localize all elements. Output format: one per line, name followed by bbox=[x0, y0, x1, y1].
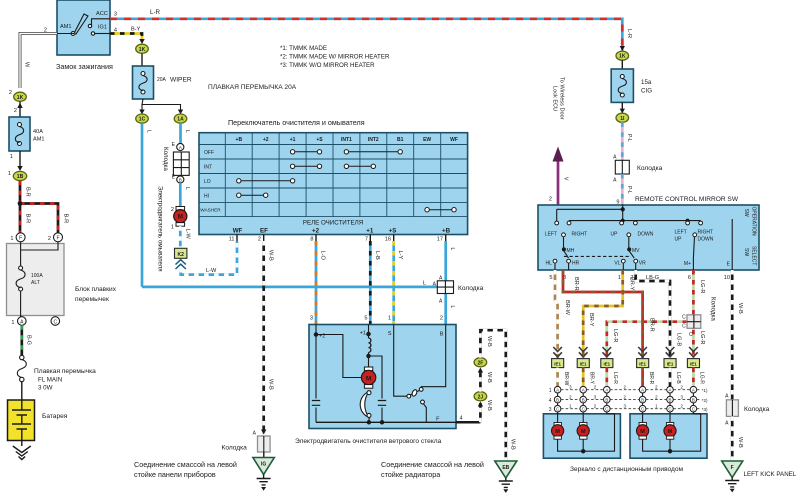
svg-text:10: 10 bbox=[724, 275, 730, 281]
svg-text:B: B bbox=[556, 398, 559, 403]
svg-text:+1: +1 bbox=[366, 228, 374, 235]
svg-text:C: C bbox=[668, 407, 671, 412]
svg-text:1K: 1K bbox=[619, 54, 626, 60]
svg-text:A: A bbox=[556, 388, 559, 393]
svg-text:L: L bbox=[423, 281, 426, 287]
svg-text:4: 4 bbox=[549, 398, 552, 404]
svg-text:*3): *3) bbox=[702, 407, 708, 412]
svg-text:A: A bbox=[179, 145, 182, 150]
svg-text:*1: TMMK MADE: *1: TMMK MADE bbox=[280, 45, 327, 52]
svg-text:To Wireless Door: To Wireless Door bbox=[559, 77, 565, 120]
svg-text:SELECT: SELECT bbox=[751, 246, 757, 265]
svg-text:DOWN: DOWN bbox=[638, 232, 654, 238]
svg-text:WF: WF bbox=[233, 228, 243, 235]
svg-text:3: 3 bbox=[310, 316, 313, 322]
svg-text:6: 6 bbox=[688, 275, 691, 281]
svg-text:UP: UP bbox=[611, 232, 619, 238]
svg-text:INT1: INT1 bbox=[341, 137, 352, 143]
svg-text:A: A bbox=[692, 388, 695, 393]
svg-text:Колодка: Колодка bbox=[744, 406, 770, 413]
svg-text:3 0W: 3 0W bbox=[38, 385, 53, 392]
svg-text:2: 2 bbox=[48, 236, 51, 242]
svg-text:IE1: IE1 bbox=[667, 361, 674, 366]
svg-text:L-B: L-B bbox=[374, 251, 380, 260]
svg-text:2: 2 bbox=[14, 108, 17, 114]
svg-text:L-O: L-O bbox=[320, 251, 326, 261]
svg-text:*1): *1) bbox=[702, 388, 708, 393]
svg-text:Колодка: Колодка bbox=[710, 297, 717, 321]
svg-text:WF: WF bbox=[450, 137, 458, 143]
svg-text:16: 16 bbox=[385, 237, 391, 243]
svg-text:A: A bbox=[582, 388, 585, 393]
svg-text:BR-R: BR-R bbox=[648, 372, 654, 385]
svg-text:EF: EF bbox=[260, 228, 268, 235]
svg-text:VR: VR bbox=[639, 261, 646, 267]
svg-text:B-G: B-G bbox=[26, 335, 32, 345]
svg-text:3: 3 bbox=[114, 12, 117, 18]
svg-text:CIG: CIG bbox=[641, 88, 652, 95]
svg-text:L: L bbox=[146, 130, 152, 133]
svg-text:W-B: W-B bbox=[268, 379, 274, 390]
svg-text:LG-R: LG-R bbox=[699, 372, 705, 384]
svg-text:REMOTE CONTROL MIRROR SW: REMOTE CONTROL MIRROR SW bbox=[635, 196, 739, 203]
svg-text:ACC: ACC bbox=[96, 11, 108, 17]
svg-text:2: 2 bbox=[171, 207, 174, 213]
svg-text:B: B bbox=[605, 398, 608, 403]
svg-text:L: L bbox=[184, 187, 190, 190]
svg-text:M: M bbox=[178, 214, 183, 221]
svg-text:B-R: B-R bbox=[25, 214, 31, 224]
svg-text:+B: +B bbox=[236, 137, 243, 143]
svg-text:*2: TMMK MADE W/ MIRROR HEATER: *2: TMMK MADE W/ MIRROR HEATER bbox=[280, 54, 390, 61]
svg-text:Зеркало с дистанционным привод: Зеркало с дистанционным приводом bbox=[570, 466, 684, 473]
svg-text:L-R: L-R bbox=[150, 9, 161, 16]
svg-text:ПЛАВКАЯ ПЕРЕМЫЧКА 20А: ПЛАВКАЯ ПЕРЕМЫЧКА 20А bbox=[208, 84, 297, 91]
svg-text:LG-R: LG-R bbox=[699, 280, 705, 293]
svg-text:2: 2 bbox=[440, 316, 443, 322]
svg-text:RIGHT: RIGHT bbox=[572, 232, 588, 238]
svg-text:INT2: INT2 bbox=[368, 137, 379, 143]
svg-text:M+: M+ bbox=[684, 261, 691, 267]
svg-text:1I: 1I bbox=[620, 116, 625, 122]
svg-text:B-R: B-R bbox=[63, 214, 69, 224]
svg-text:Электродвигатель омывателя: Электродвигатель омывателя bbox=[157, 186, 164, 272]
svg-text:EB: EB bbox=[502, 465, 509, 471]
svg-text:Соединение смассой на левой: Соединение смассой на левой bbox=[134, 460, 237, 469]
svg-text:1: 1 bbox=[8, 171, 11, 177]
svg-text:B: B bbox=[440, 332, 444, 338]
svg-text:FL MAIN: FL MAIN bbox=[38, 377, 62, 384]
svg-text:1B: 1B bbox=[17, 174, 24, 180]
svg-text:Соединение смассой на левой: Соединение смассой на левой bbox=[381, 460, 484, 469]
svg-text:F: F bbox=[56, 236, 59, 242]
svg-text:100A: 100A bbox=[31, 273, 43, 279]
svg-text:Переключатель очистителя и омы: Переключатель очистителя и омывателя bbox=[228, 118, 365, 127]
svg-text:1: 1 bbox=[388, 316, 391, 322]
svg-text:SW: SW bbox=[743, 209, 749, 217]
svg-text:C: C bbox=[682, 324, 686, 330]
svg-text:40A: 40A bbox=[33, 129, 43, 135]
svg-text:20A: 20A bbox=[157, 77, 167, 83]
svg-text:OPERATION: OPERATION bbox=[751, 207, 757, 236]
svg-text:MH: MH bbox=[567, 248, 575, 254]
svg-text:BR-R: BR-R bbox=[649, 318, 655, 332]
svg-text:2F: 2F bbox=[477, 360, 483, 366]
svg-text:+2: +2 bbox=[312, 228, 320, 235]
svg-text:4: 4 bbox=[460, 416, 463, 422]
svg-text:F: F bbox=[436, 417, 440, 423]
svg-text:1: 1 bbox=[11, 320, 14, 326]
svg-text:F: F bbox=[19, 236, 22, 242]
svg-text:C: C bbox=[692, 407, 695, 412]
svg-text:Колодка: Колодка bbox=[637, 165, 663, 172]
svg-text:Колодка: Колодка bbox=[162, 147, 169, 171]
svg-text:WIPER: WIPER bbox=[170, 77, 192, 84]
svg-text:M: M bbox=[366, 375, 372, 382]
svg-text:Батарея: Батарея bbox=[42, 413, 68, 420]
svg-text:BR-R: BR-R bbox=[573, 277, 579, 291]
svg-text:IE1: IE1 bbox=[690, 361, 697, 366]
svg-text:W-B: W-B bbox=[486, 400, 492, 411]
svg-text:LG-R: LG-R bbox=[699, 331, 705, 344]
svg-text:K2: K2 bbox=[177, 252, 184, 258]
svg-text:L: L bbox=[184, 130, 190, 133]
svg-text:IE1: IE1 bbox=[604, 361, 611, 366]
svg-text:LEFT KICK PANEL: LEFT KICK PANEL bbox=[744, 471, 797, 478]
svg-text:M: M bbox=[640, 429, 645, 435]
svg-text:7: 7 bbox=[365, 237, 368, 243]
svg-text:S: S bbox=[388, 331, 392, 337]
svg-text:EW: EW bbox=[423, 137, 431, 143]
svg-text:+1: +1 bbox=[290, 137, 296, 143]
svg-text:IE1: IE1 bbox=[639, 361, 646, 366]
svg-text:AM1: AM1 bbox=[33, 137, 45, 143]
svg-text:1: 1 bbox=[10, 154, 13, 160]
svg-text:AM1: AM1 bbox=[60, 24, 72, 30]
svg-text:W-B: W-B bbox=[486, 336, 492, 347]
svg-text:BR-W: BR-W bbox=[564, 300, 570, 316]
svg-text:LEFT: LEFT bbox=[545, 232, 557, 238]
svg-text:1: 1 bbox=[171, 225, 174, 231]
svg-text:HL: HL bbox=[546, 261, 553, 267]
svg-text:W-B: W-B bbox=[486, 372, 492, 383]
svg-text:M: M bbox=[555, 429, 560, 435]
svg-text:L-W: L-W bbox=[184, 229, 190, 240]
svg-text:2: 2 bbox=[549, 197, 552, 203]
svg-text:11: 11 bbox=[229, 237, 235, 243]
svg-text:LG-R: LG-R bbox=[612, 372, 618, 384]
svg-text:IE1: IE1 bbox=[580, 361, 587, 366]
svg-text:1A: 1A bbox=[177, 117, 184, 123]
svg-text:DOWN: DOWN bbox=[698, 237, 714, 243]
svg-text:UP: UP bbox=[675, 237, 683, 243]
svg-text:2: 2 bbox=[9, 90, 12, 96]
svg-text:стойке радиатора: стойке радиатора bbox=[381, 470, 440, 479]
svg-text:1K: 1K bbox=[139, 47, 146, 53]
svg-text:3: 3 bbox=[549, 407, 552, 413]
svg-text:HI: HI bbox=[204, 193, 209, 199]
svg-text:LB-G: LB-G bbox=[646, 275, 659, 281]
svg-text:C: C bbox=[641, 407, 644, 412]
svg-text:8: 8 bbox=[310, 237, 313, 243]
svg-text:2J: 2J bbox=[478, 394, 484, 400]
svg-text:W-B: W-B bbox=[737, 303, 743, 314]
svg-text:ALT: ALT bbox=[31, 280, 40, 286]
svg-text:VL: VL bbox=[614, 261, 620, 267]
svg-text:5: 5 bbox=[549, 275, 552, 281]
svg-text:M: M bbox=[581, 429, 586, 435]
svg-text:C: C bbox=[605, 407, 608, 412]
svg-text:W-B: W-B bbox=[737, 437, 743, 448]
svg-text:Замок зажигания: Замок зажигания bbox=[56, 62, 113, 71]
svg-text:RIGHT: RIGHT bbox=[698, 230, 714, 236]
svg-text:Lock ECU: Lock ECU bbox=[552, 86, 558, 111]
svg-text:C: C bbox=[556, 407, 559, 412]
svg-text:BR-Y: BR-Y bbox=[588, 313, 594, 327]
svg-text:C: C bbox=[582, 407, 585, 412]
svg-text:1K: 1K bbox=[17, 95, 24, 101]
svg-text:A: A bbox=[669, 388, 672, 393]
svg-text:2: 2 bbox=[258, 237, 261, 243]
svg-text:C: C bbox=[689, 332, 693, 338]
svg-text:B: B bbox=[692, 398, 695, 403]
svg-text:C: C bbox=[53, 319, 57, 325]
svg-text:M: M bbox=[668, 429, 673, 435]
svg-text:B: B bbox=[669, 398, 672, 403]
svg-text:L: L bbox=[449, 248, 455, 251]
svg-text:L-Y: L-Y bbox=[397, 251, 403, 260]
svg-text:SW: SW bbox=[743, 248, 749, 256]
svg-text:LG-R: LG-R bbox=[612, 329, 618, 342]
svg-text:+B: +B bbox=[442, 228, 451, 235]
svg-text:B1: B1 bbox=[397, 137, 404, 143]
svg-text:1: 1 bbox=[618, 275, 621, 281]
svg-text:B-R: B-R bbox=[25, 187, 31, 197]
svg-text:LG-B: LG-B bbox=[676, 333, 682, 346]
svg-text:W: W bbox=[24, 62, 30, 68]
svg-text:+S: +S bbox=[389, 228, 397, 235]
svg-text:L-W: L-W bbox=[206, 268, 217, 274]
svg-text:C: C bbox=[682, 315, 686, 321]
svg-text:BR-W: BR-W bbox=[563, 372, 569, 386]
svg-text:Колодка: Колодка bbox=[458, 285, 484, 292]
svg-text:5: 5 bbox=[364, 316, 367, 322]
svg-text:INT: INT bbox=[204, 165, 212, 171]
svg-text:Электродвигатель очистителя ве: Электродвигатель очистителя ветрового ст… bbox=[295, 438, 442, 445]
svg-text:Колодка: Колодка bbox=[222, 445, 248, 452]
svg-text:*2): *2) bbox=[702, 398, 708, 403]
svg-text:*3: TMMK W/O MIRROR HEATER: *3: TMMK W/O MIRROR HEATER bbox=[280, 62, 375, 69]
svg-text:B: B bbox=[582, 398, 585, 403]
svg-text:1: 1 bbox=[10, 236, 13, 242]
svg-text:B: B bbox=[179, 177, 182, 182]
svg-text:+1: +1 bbox=[360, 331, 366, 337]
svg-text:BR-Y: BR-Y bbox=[588, 372, 594, 385]
svg-text:Блок плавких: Блок плавких bbox=[75, 286, 117, 293]
svg-text:W-B: W-B bbox=[268, 250, 274, 261]
svg-text:B: B bbox=[641, 398, 644, 403]
svg-text:17: 17 bbox=[437, 237, 443, 243]
svg-text:стойке панели приборов: стойке панели приборов bbox=[134, 470, 216, 479]
svg-text:P-L: P-L bbox=[626, 134, 632, 142]
svg-text:1C: 1C bbox=[139, 117, 146, 123]
svg-text:+2: +2 bbox=[319, 334, 325, 340]
svg-text:A: A bbox=[605, 388, 608, 393]
svg-text:перемычек: перемычек bbox=[75, 296, 109, 303]
svg-text:1: 1 bbox=[549, 388, 552, 394]
svg-text:РЕЛЕ ОЧИСТИТЕЛЯ: РЕЛЕ ОЧИСТИТЕЛЯ bbox=[303, 220, 363, 227]
svg-text:P-L: P-L bbox=[626, 186, 632, 194]
svg-text:W-B: W-B bbox=[510, 439, 516, 450]
svg-text:F: F bbox=[731, 465, 734, 471]
svg-text:LEFT: LEFT bbox=[675, 230, 687, 236]
svg-text:LO: LO bbox=[204, 179, 211, 185]
svg-text:Плавкая перемычка: Плавкая перемычка bbox=[34, 368, 96, 375]
svg-text:B-Y: B-Y bbox=[131, 27, 141, 33]
svg-text:WASHER: WASHER bbox=[200, 208, 221, 213]
svg-text:15a: 15a bbox=[641, 79, 652, 86]
svg-text:IG1: IG1 bbox=[98, 25, 107, 31]
svg-text:MV: MV bbox=[632, 248, 640, 254]
svg-text:L-R: L-R bbox=[626, 29, 632, 38]
svg-text:LG-B: LG-B bbox=[675, 372, 681, 384]
svg-text:HR: HR bbox=[572, 261, 580, 267]
svg-text:+S: +S bbox=[316, 137, 323, 143]
svg-text:IG: IG bbox=[261, 462, 266, 468]
svg-text:IE1: IE1 bbox=[554, 361, 561, 366]
svg-text:A: A bbox=[641, 388, 644, 393]
svg-text:+2: +2 bbox=[263, 137, 269, 143]
svg-text:BR-Y: BR-Y bbox=[629, 277, 635, 291]
svg-text:L: L bbox=[449, 306, 455, 309]
svg-text:OFF: OFF bbox=[204, 150, 214, 156]
